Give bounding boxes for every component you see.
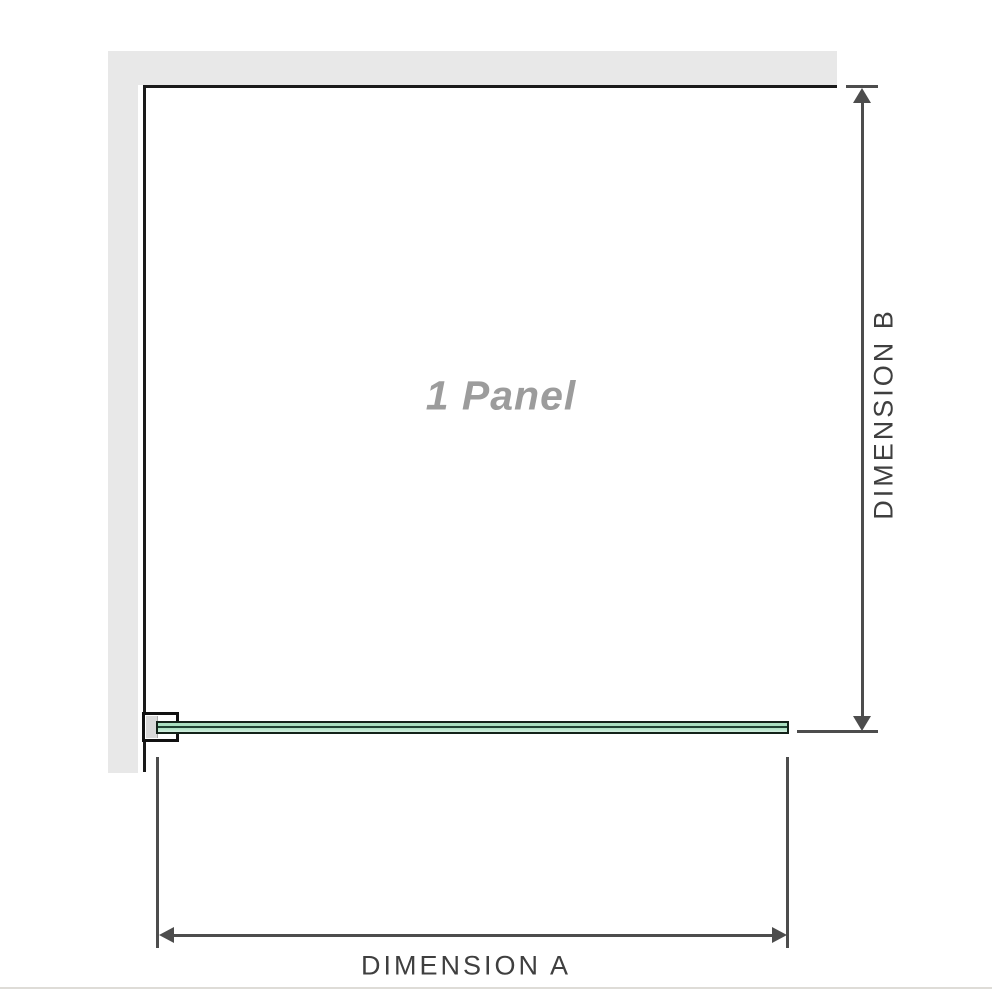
dimension-a-arrowhead-left-icon bbox=[159, 927, 174, 943]
dimension-b-arrowhead-down-icon bbox=[853, 716, 871, 731]
panel-left-edge bbox=[143, 85, 146, 772]
panel-top-edge bbox=[143, 85, 837, 88]
dimension-a-label: DIMENSION A bbox=[361, 951, 571, 982]
dimension-a-right-extension-line bbox=[786, 757, 789, 948]
glass-center-line bbox=[158, 726, 787, 728]
wall-left-strip bbox=[108, 51, 138, 773]
panel-count-label: 1 Panel bbox=[426, 373, 577, 420]
dimension-b-line bbox=[861, 96, 864, 723]
dimension-b-arrowhead-up-icon bbox=[853, 88, 871, 103]
shower-panel-diagram: 1 Panel DIMENSION B DIMENSION A bbox=[0, 0, 1000, 1000]
dimension-b-label: DIMENSION B bbox=[869, 308, 900, 520]
dimension-a-line bbox=[171, 934, 774, 937]
image-bottom-border bbox=[0, 987, 992, 989]
dimension-a-left-extension-line bbox=[156, 757, 159, 948]
glass-panel-bar bbox=[156, 721, 789, 734]
wall-top-strip bbox=[108, 51, 837, 85]
dimension-a-arrowhead-right-icon bbox=[772, 927, 787, 943]
